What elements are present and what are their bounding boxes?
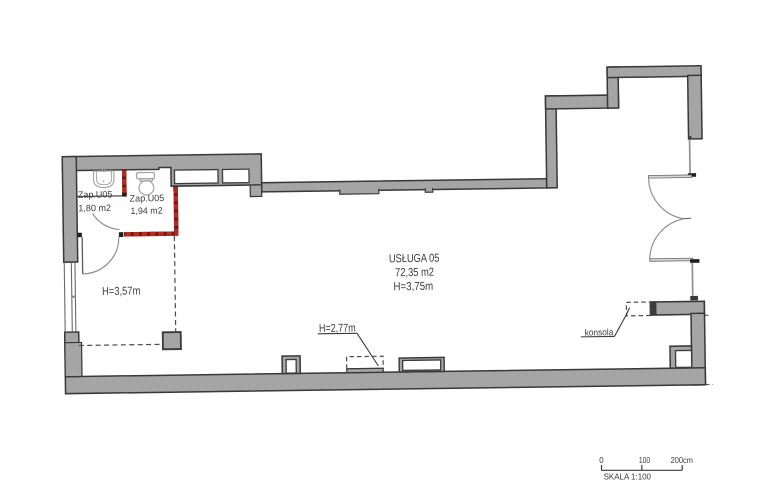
svg-text:USŁUGA 05: USŁUGA 05 <box>389 252 440 266</box>
svg-text:Zap.U05: Zap.U05 <box>78 189 112 199</box>
svg-text:1,94 m2: 1,94 m2 <box>130 206 162 216</box>
svg-text:SKALA 1:100: SKALA 1:100 <box>604 473 652 482</box>
svg-text:200cm: 200cm <box>671 456 693 465</box>
svg-text:100: 100 <box>639 456 651 465</box>
svg-text:0: 0 <box>599 456 604 465</box>
svg-text:1,80 m2: 1,80 m2 <box>78 203 111 213</box>
svg-text:Zap.U05: Zap.U05 <box>130 193 165 203</box>
svg-text:H=3,57m: H=3,57m <box>102 285 140 298</box>
svg-text:H=3,75m: H=3,75m <box>393 280 433 294</box>
svg-text:72,35 m2: 72,35 m2 <box>395 266 434 280</box>
